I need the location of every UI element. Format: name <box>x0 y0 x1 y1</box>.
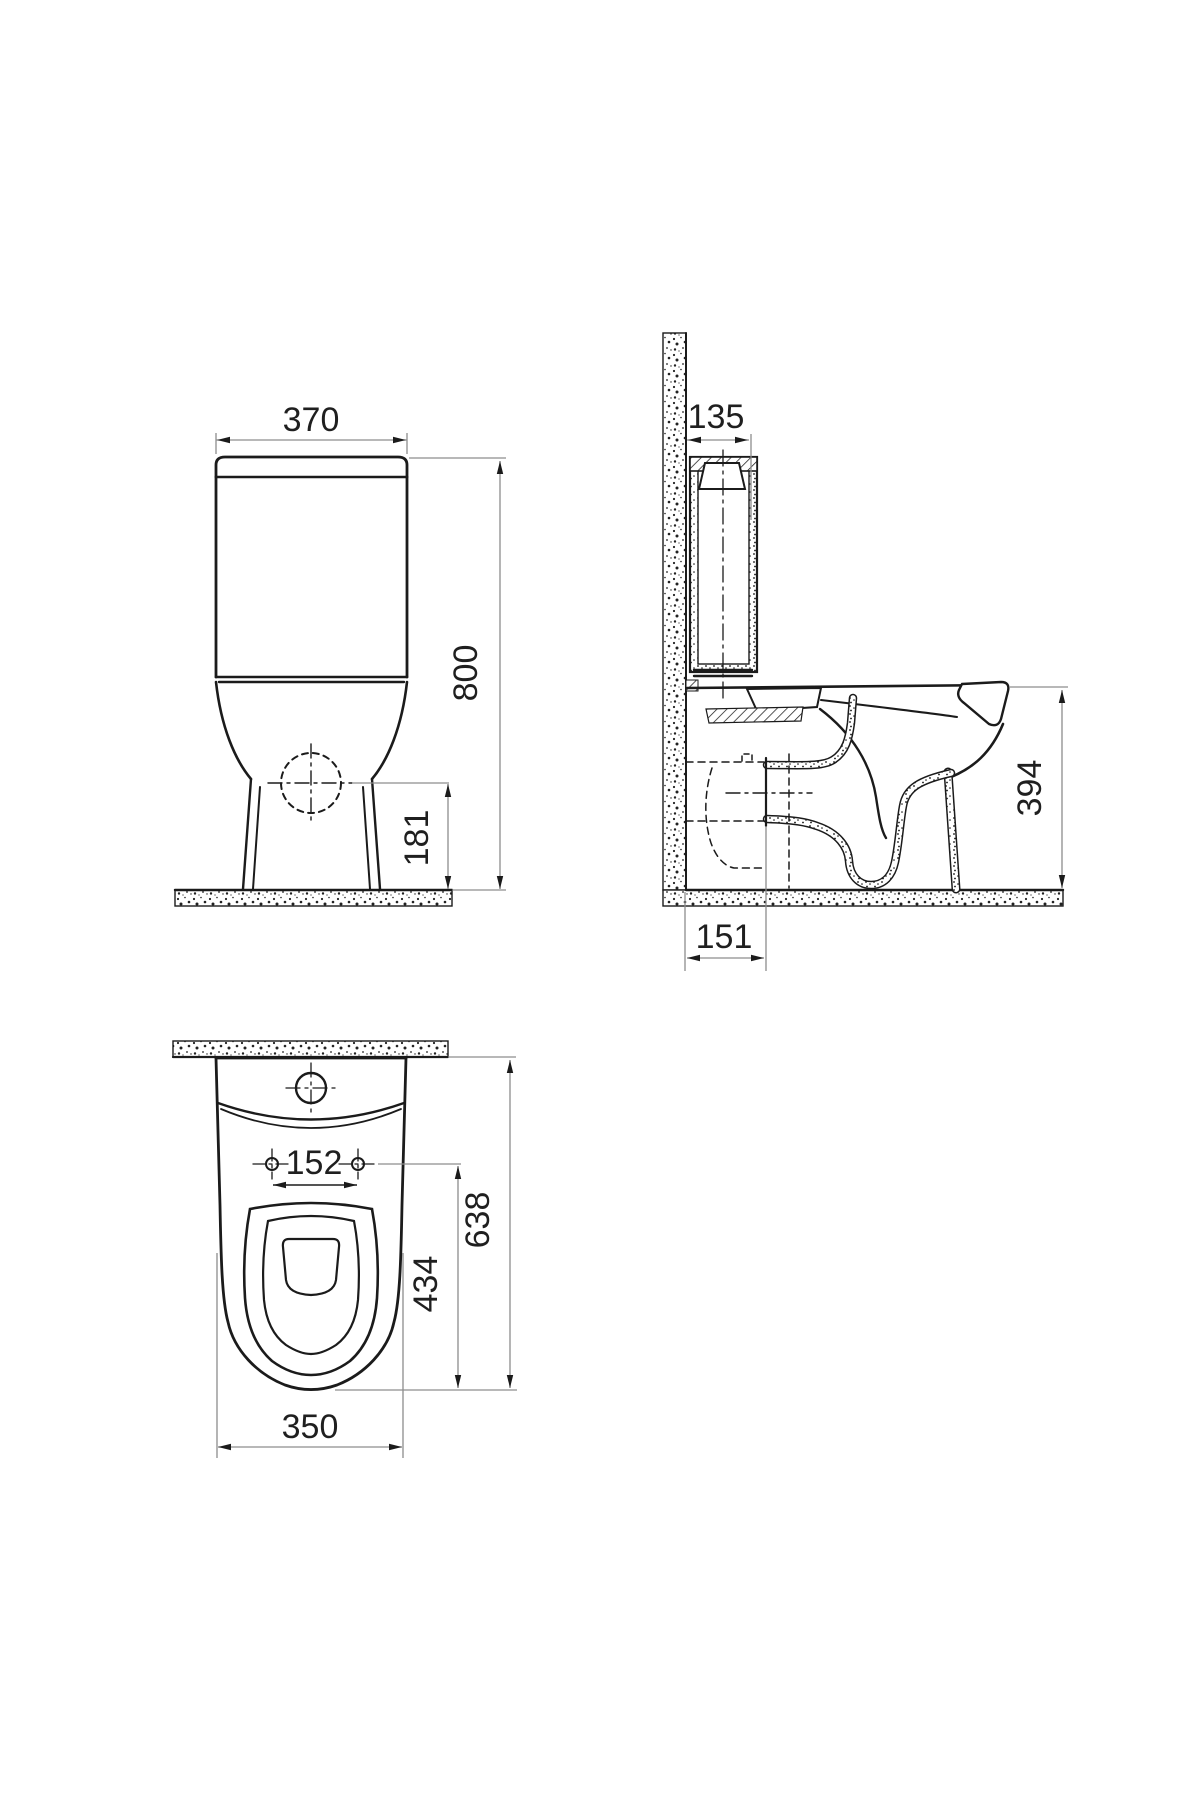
dim-label-rim-height: 394 <box>1011 760 1049 817</box>
under-seat-line <box>821 700 957 717</box>
wall-section <box>663 333 686 890</box>
arrowhead <box>344 1182 357 1188</box>
arrowhead <box>497 876 503 889</box>
rim-section-hatch <box>706 707 803 723</box>
foot-section-fill <box>948 772 956 889</box>
arrowhead <box>507 1375 513 1388</box>
arrowhead <box>445 876 451 889</box>
dim-label-outlet-offset: 151 <box>696 918 753 956</box>
plan-view-dimensions: 152 434 638 350 <box>217 1057 517 1458</box>
arrowhead <box>497 461 503 474</box>
arrowhead <box>455 1166 461 1179</box>
arrowhead <box>507 1060 513 1073</box>
floor-side <box>663 890 1063 906</box>
rim-back-section <box>686 680 698 691</box>
technical-drawing-canvas: 370 800 181 <box>0 0 1200 1800</box>
wall-plan <box>173 1041 448 1057</box>
arrowhead <box>273 1182 286 1188</box>
cistern-lid-front <box>216 457 407 477</box>
arrowhead <box>445 784 451 797</box>
fill-valve-cap <box>699 463 745 489</box>
plan-view <box>173 1041 448 1390</box>
arrowhead <box>751 955 764 961</box>
arrowhead <box>735 437 748 443</box>
arrowhead <box>217 437 230 443</box>
hidden-outlet-curve <box>706 768 763 868</box>
dim-label-front-width: 370 <box>283 401 340 439</box>
body-outline-plan <box>216 1058 406 1390</box>
drawing-page: 370 800 181 <box>0 0 1200 1800</box>
dim-seat-cutout-depth: 434 <box>378 1164 461 1388</box>
bowl-opening-outline <box>263 1216 359 1354</box>
arrowhead <box>455 1375 461 1388</box>
trap-lower-edge <box>767 773 951 885</box>
arrowhead <box>389 1444 402 1450</box>
dim-label-inlet-height: 181 <box>398 810 436 867</box>
trap-lower-fill <box>767 773 951 885</box>
arrowhead <box>1059 875 1065 888</box>
dim-label-front-height: 800 <box>447 645 485 702</box>
water-spot-outline <box>283 1239 339 1295</box>
dim-label-cistern-depth: 135 <box>688 398 745 436</box>
leg-left-inner <box>253 787 260 889</box>
arrowhead <box>1059 690 1065 703</box>
seat-top-line <box>687 685 1000 688</box>
dim-front-width: 370 <box>216 401 407 454</box>
bowl-front-shell <box>951 724 1003 777</box>
arrowhead <box>218 1444 231 1450</box>
rim-front-section <box>958 682 1008 725</box>
leg-left-outer <box>243 779 251 889</box>
dim-hinge-centers: 152 <box>273 1144 357 1188</box>
dim-total-depth: 638 <box>335 1057 517 1390</box>
arrowhead <box>393 437 406 443</box>
dim-label-total-depth: 638 <box>459 1192 497 1249</box>
dim-label-bowl-width: 350 <box>282 1408 339 1446</box>
dim-rim-height: 394 <box>1010 687 1068 888</box>
bowl-taper-right <box>372 682 407 779</box>
front-view-dimensions: 370 800 181 <box>216 401 506 890</box>
hidden-outlet-bracket <box>742 754 752 761</box>
bowl-taper-left <box>216 682 251 779</box>
dim-label-seat-cutout: 434 <box>407 1256 445 1313</box>
arrowhead <box>688 437 701 443</box>
leg-right-inner <box>363 787 370 889</box>
floor-front <box>175 890 452 906</box>
leg-right-outer <box>372 779 380 889</box>
dim-label-hinge-centers: 152 <box>286 1144 343 1182</box>
